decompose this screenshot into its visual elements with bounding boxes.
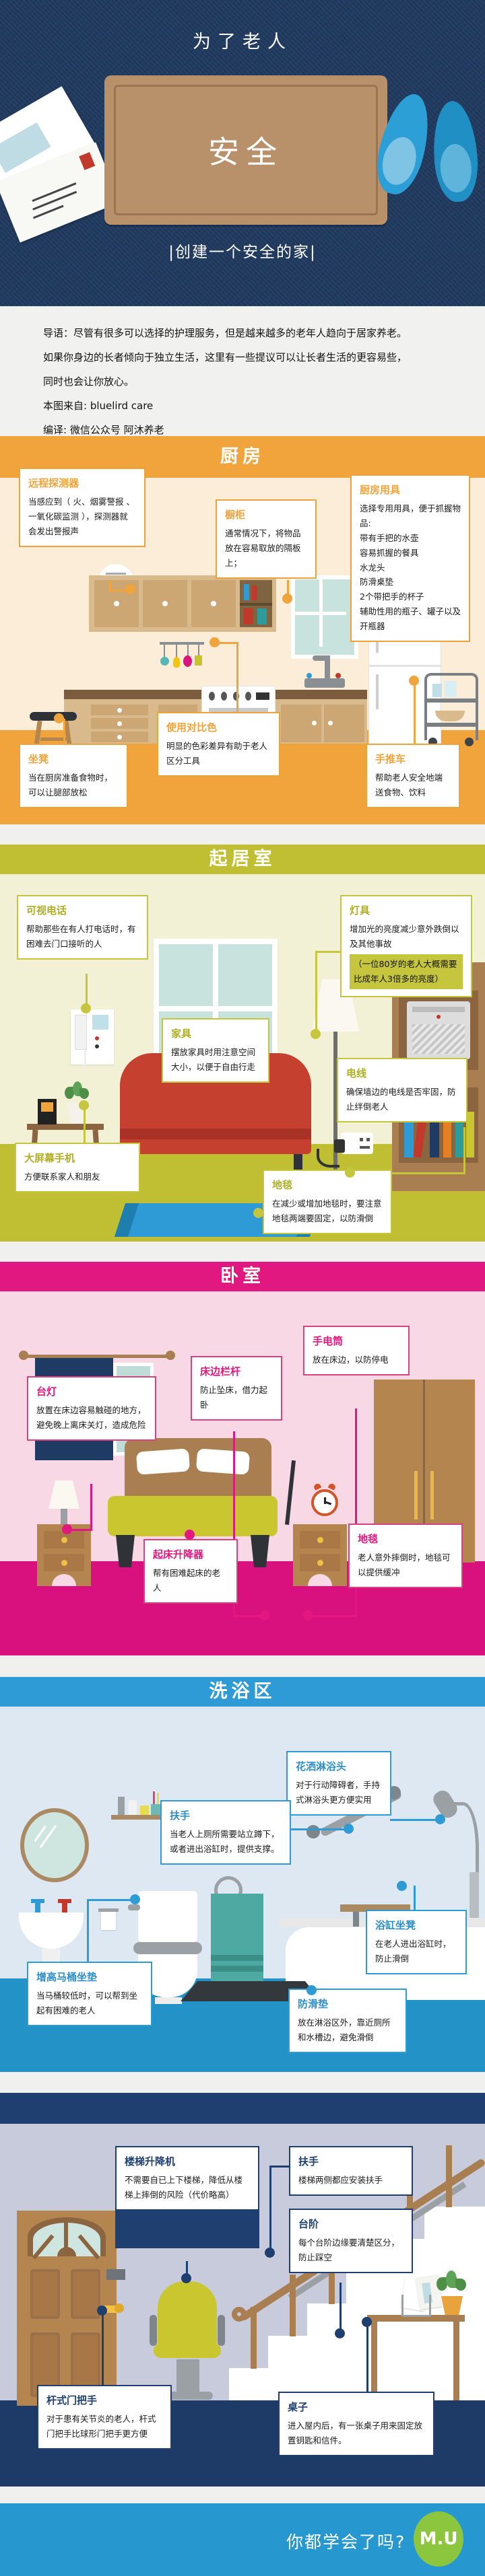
stair-lift-note-footer <box>117 2209 258 2247</box>
note-text: 防滑桌垫 <box>360 575 461 589</box>
note-text: 2个带把手的杯子 <box>360 589 461 604</box>
note-title: 坐凳 <box>28 752 119 766</box>
note-text: 帮有困难起床的老人 <box>153 1566 228 1596</box>
toilet-seat <box>133 1942 202 1954</box>
note-text: 水龙头 <box>360 561 461 575</box>
note-furniture: 家具 摆放家具时用注意空间大小，以便于自由行走 <box>162 1018 269 1083</box>
note-title: 地毯 <box>358 1532 453 1546</box>
hall-plant-icon <box>437 2270 466 2297</box>
note-text: 通常情况下，将物品放在容易取放的隔板上； <box>225 526 307 571</box>
note-title: 扶手 <box>298 2154 403 2168</box>
intro-line: 如果你身边的长者倾向于独立生活，这里有一些提议可以让长者生活的更容易些， <box>43 345 447 369</box>
note-bed-lift: 起床升降器 帮有困难起床的老人 <box>143 1539 238 1604</box>
pillow-icon <box>136 1448 190 1474</box>
note-table-lamp: 台灯 放置在床边容易触碰的地方，避免晚上离床关灯，造成危险 <box>27 1376 156 1441</box>
note-text: 帮助老人安全地端送食物、饮料 <box>375 771 451 800</box>
bathroom-section: 洗浴区 <box>0 1677 485 2072</box>
note-title: 家具 <box>171 1026 260 1040</box>
infographic-page: 为了老人 安全 |创建一个安全的家| 导语：尽管有很多可以选择的护理服务，但是越… <box>0 0 485 2576</box>
note-bedroom-carpet: 地毯 老人意外摔倒时，地毯可以提供缓冲 <box>348 1524 463 1588</box>
note-text: 不需要自已上下楼梯，降低从楼梯上摔倒的风险（代价略高） <box>125 2173 250 2203</box>
note-text: 选择专用用具，便于抓握物品: <box>360 501 461 531</box>
note-grab-bar: 扶手 当老人上厕所需要站立蹲下，或者进出浴缸时，提供支撑。 <box>160 1800 291 1865</box>
spatula-icon <box>195 655 202 666</box>
note-bed-rail: 床边栏杆 防止坠床，借力起卧 <box>191 1356 282 1421</box>
hot-tap-icon <box>62 1902 67 1912</box>
note-remote-detector: 远程探测器 当感应到（ 火、烟雾警报 、一氧化碳监测 ），探测器就会发出警报声 <box>19 468 145 547</box>
note-living-rug: 地毯 在减少或增加地毯时，要注意地毯两端要固定，以防滑倒 <box>263 1170 392 1234</box>
intro-editor: 编译: 微信公众号 阿沐养老 <box>43 418 447 436</box>
hallway-section-header <box>0 2093 485 2124</box>
note-title: 台阶 <box>298 2217 403 2231</box>
note-text: 确保墙边的电线是否牢固，防止绊倒老人 <box>346 1085 458 1114</box>
note-text: 容易抓握的餐具 <box>360 546 461 561</box>
note-text: 方便联系家人和朋友 <box>24 1170 131 1184</box>
side-table-icon <box>27 1124 104 1130</box>
note-title: 床边栏杆 <box>200 1364 273 1378</box>
step-stool-icon <box>30 712 77 721</box>
note-lighting: 灯具 增加光的亮度减少意外跌倒以及其他事故 （一位80岁的老人大概需要比成年人3… <box>340 895 472 997</box>
mirror-icon <box>20 1808 89 1882</box>
note-title: 手电筒 <box>313 1334 400 1348</box>
note-shower-head: 花洒淋浴头 对于行动障碍者，手持式淋浴头更方便实用 <box>286 1751 391 1816</box>
note-text: 在老人进出浴缸时，防止滑倒 <box>375 1937 457 1966</box>
note-title: 远程探测器 <box>28 476 136 490</box>
note-title: 桌子 <box>288 2400 425 2414</box>
wall-outlet-icon <box>341 1133 373 1154</box>
note-title: 灯具 <box>350 903 463 917</box>
door-lock-icon <box>106 2269 125 2280</box>
stair-lift-icon <box>158 2281 217 2349</box>
note-flashlight: 手电筒 放在床边，以防停电 <box>303 1326 410 1375</box>
cold-tap-icon <box>35 1902 40 1912</box>
note-text: 放在淋浴区外，靠近厕所和水槽边，避免滑倒 <box>298 2015 397 2045</box>
note-text: 当在厨房准备食物时，可以让腿部放松 <box>28 771 119 800</box>
note-text: 摆放家具时用注意空间大小，以便于自由行走 <box>171 1045 260 1075</box>
note-text: 对于患有关节炎的老人，杆式门把手比球形门把手更方便 <box>46 2412 162 2441</box>
note-text: 当老人上厕所需要站立蹲下，或者进出浴缸时，提供支撑。 <box>170 1827 282 1857</box>
upper-cabinets <box>89 575 276 632</box>
note-kitchen-utensils: 厨房用具 选择专用用具，便于抓握物品: 带有手把的水壶 容易抓握的餐具 水龙头 … <box>350 474 470 642</box>
note-highlight: （一位80岁的老人大概需要比成年人3倍多的亮度） <box>350 954 463 989</box>
note-text: 放在床边，以防停电 <box>313 1353 400 1367</box>
note-title: 台灯 <box>36 1384 147 1398</box>
note-text: 辅助性用的瓶子、罐子以及 <box>360 604 461 619</box>
note-title: 扶手 <box>170 1808 282 1822</box>
note-text: 当感应到（ 火、烟雾警报 、一氧化碳监测 ），探测器就会发出警报声 <box>28 495 136 539</box>
note-title: 楼梯升降机 <box>125 2154 250 2168</box>
intro-section: 导语：尽管有很多可以选择的护理服务，但是越来越多的老年人趋向于居家养老。 如果你… <box>0 306 485 436</box>
page-title: 为了老人 <box>0 27 485 53</box>
note-title: 大屏幕手机 <box>24 1151 131 1165</box>
living-room-section-title: 起居室 <box>0 845 485 874</box>
note-title: 厨房用具 <box>360 482 461 497</box>
hallway-section: 楼梯升降机 不需要自已上下楼梯，降低从楼梯上摔倒的风险（代价略高） 扶手 楼梯两… <box>0 2093 485 2486</box>
bedroom-section: 卧室 <box>0 1262 485 1655</box>
whisk-icon <box>173 657 180 668</box>
note-text: 防止坠床，借力起卧 <box>200 1383 273 1412</box>
note-text: 明显的色彩差异有助于老人区分工具 <box>166 739 271 768</box>
kitchen-window <box>291 575 358 659</box>
note-text: 在减少或增加地毯时，要注意地毯两端要固定，以防滑倒 <box>272 1196 383 1226</box>
note-title: 杆式门把手 <box>46 2393 162 2407</box>
wall-videophone-icon <box>71 1009 114 1065</box>
note-steps: 台阶 每个台阶边缘要清楚区分，防止踩空 <box>289 2209 413 2273</box>
note-title: 电线 <box>346 1066 458 1080</box>
footer-section: 你都学会了吗? M.U <box>0 2503 485 2576</box>
bathroom-section-title: 洗浴区 <box>0 1677 485 1707</box>
page-subtitle: |创建一个安全的家| <box>0 239 485 262</box>
note-title: 增高马桶坐垫 <box>36 1970 143 1984</box>
intro-line: 同时也会让你放心。 <box>43 369 447 394</box>
note-title: 浴缸坐凳 <box>375 1918 457 1932</box>
note-text: 老人意外摔倒时，地毯可以提供缓冲 <box>358 1550 453 1580</box>
brand-logo: M.U <box>414 2511 463 2567</box>
note-lever-handle: 杆式门把手 对于患有关节炎的老人，杆式门把手比球形门把手更方便 <box>37 2385 172 2449</box>
doormat: 安全 <box>104 75 387 225</box>
nightstand-icon <box>293 1524 347 1586</box>
note-stool: 坐凳 当在厨房准备食物时，可以让腿部放松 <box>19 744 128 808</box>
toiletry-icon <box>129 1800 137 1815</box>
doormat-text: 安全 <box>104 75 387 225</box>
note-tub-seat: 浴缸坐凳 在老人进出浴缸时，防止滑倒 <box>366 1910 467 1974</box>
note-text: 对于行动障碍者，手持式淋浴头更方便实用 <box>296 1778 382 1808</box>
note-title: 起床升降器 <box>153 1547 228 1561</box>
note-title: 花洒淋浴头 <box>296 1759 382 1773</box>
note-text: 开瓶器 <box>360 619 461 634</box>
toilet-icon <box>138 1891 197 1942</box>
note-antislip-mat: 防滑垫 放在淋浴区外，靠近厕所和水槽边，避免滑倒 <box>288 1989 407 2053</box>
intro-line: 导语：尽管有很多可以选择的护理服务，但是越来越多的老年人趋向于居家养老。 <box>43 321 447 345</box>
note-title: 地毯 <box>272 1178 383 1192</box>
note-title: 手推车 <box>375 752 451 766</box>
note-cart: 手推车 帮助老人安全地端送食物、饮料 <box>366 744 460 808</box>
note-raised-toilet-seat: 增高马桶坐垫 当马桶较低时，可以帮到坐起有困难的老人 <box>27 1962 152 2026</box>
bedside-lamp-icon <box>48 1480 79 1509</box>
note-contrast-colors: 使用对比色 明显的色彩差异有助于老人区分工具 <box>157 712 280 777</box>
spoon-icon <box>183 655 192 667</box>
alarm-clock-icon <box>311 1489 338 1516</box>
toiletry-icon <box>140 1805 149 1815</box>
note-title: 橱柜 <box>225 507 307 522</box>
pillow-icon <box>196 1448 250 1474</box>
note-text: 增加光的亮度减少意外跌倒以及其他事故 <box>350 922 463 952</box>
kitchen-section: 厨房 <box>0 436 485 824</box>
toilet-paper-icon <box>101 1910 116 1930</box>
note-text: 当马桶较低时，可以帮到坐起有困难的老人 <box>36 1989 143 2018</box>
note-cupboard: 橱柜 通常情况下，将物品放在容易取放的隔板上； <box>216 499 317 579</box>
note-text: 放置在床边容易触碰的地方，避免晚上离床关灯，造成危险 <box>36 1403 147 1433</box>
banister-curl <box>232 2307 247 2322</box>
banister-post <box>446 2145 452 2207</box>
living-room-section: 起居室 <box>0 845 485 1242</box>
slipper-icon <box>430 100 480 203</box>
phone-icon <box>38 1099 57 1124</box>
ladle-icon <box>160 657 169 666</box>
note-title: 使用对比色 <box>166 720 271 734</box>
note-cords: 电线 确保墙边的电线是否牢固，防止绊倒老人 <box>337 1058 467 1122</box>
letter-holder-icon <box>401 2295 431 2317</box>
hero-section: 为了老人 安全 |创建一个安全的家| <box>0 0 485 306</box>
shower-hose <box>453 1802 479 1880</box>
note-big-screen-phone: 大屏幕手机 方便联系家人和朋友 <box>15 1143 140 1192</box>
sink-icon <box>19 1912 84 1949</box>
note-stair-lift: 楼梯升降机 不需要自已上下楼梯，降低从楼梯上摔倒的风险（代价略高） <box>115 2146 259 2248</box>
stair-step <box>424 2207 485 2239</box>
note-title: 可视电话 <box>26 903 139 917</box>
note-hall-table: 桌子 进入屋内后，有一张桌子用来固定放置钥匙和信件。 <box>278 2392 434 2456</box>
note-text: 楼梯两侧都应安装扶手 <box>298 2173 403 2188</box>
toiletry-icon <box>118 1797 125 1815</box>
footer-question: 你都学会了吗? <box>286 2529 408 2553</box>
note-title: 防滑垫 <box>298 1997 397 2011</box>
bedroom-section-title: 卧室 <box>0 1262 485 1291</box>
serving-cart-icon <box>424 673 478 740</box>
note-stair-handrail: 扶手 楼梯两侧都应安装扶手 <box>289 2146 413 2196</box>
note-text: 带有手把的水壶 <box>360 531 461 546</box>
note-text: 每个台阶边缘要清楚区分，防止踩空 <box>298 2235 403 2265</box>
note-text: 进入屋内后，有一张桌子用来固定放置钥匙和信件。 <box>288 2419 425 2448</box>
note-text: 帮助那些在有人打电话时，有困难去门口接听的人 <box>26 922 139 952</box>
note-videophone: 可视电话 帮助那些在有人打电话时，有困难去门口接听的人 <box>17 895 148 960</box>
intro-source: 本图来自: bluelird care <box>43 394 447 418</box>
towel-icon <box>211 1894 263 1982</box>
walking-cane-icon <box>285 1460 296 1525</box>
